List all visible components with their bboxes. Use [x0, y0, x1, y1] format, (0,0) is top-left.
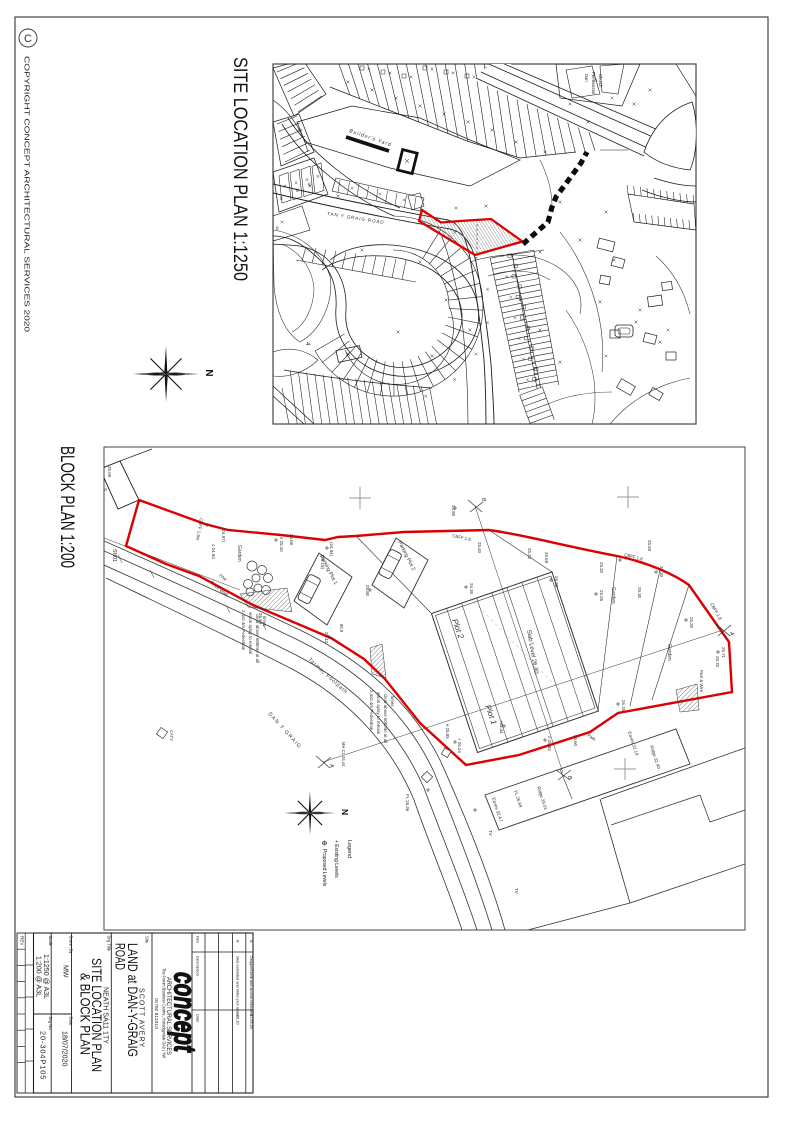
- svg-text:e 25.85: e 25.85: [445, 724, 450, 739]
- svg-text:20-304P105: 20-304P105: [39, 1031, 48, 1080]
- svg-text:B: B: [566, 776, 572, 780]
- svg-text:2.4x2.4m Pedestrian: 2.4x2.4m Pedestrian: [241, 610, 246, 651]
- svg-text:Drg Title: Drg Title: [107, 936, 112, 952]
- svg-text:CATV: CATV: [169, 730, 174, 741]
- svg-text:o 24.93: o 24.93: [211, 544, 216, 559]
- svg-text:12: 12: [279, 196, 283, 200]
- svg-text:26.15: 26.15: [621, 700, 626, 712]
- svg-text:& BLOCK PLAN: & BLOCK PLAN: [77, 973, 93, 1055]
- svg-text:B: B: [480, 498, 486, 502]
- svg-text:25.59: 25.59: [647, 540, 652, 552]
- svg-text:vision splay to remain: vision splay to remain: [248, 612, 253, 655]
- svg-text:25.43: 25.43: [324, 632, 329, 644]
- svg-text:42: 42: [275, 226, 279, 230]
- svg-text:Drawn By: Drawn By: [69, 936, 74, 955]
- svg-text:01.09.20: 01.09.20: [249, 1014, 253, 1029]
- svg-text:(24.87): (24.87): [221, 528, 226, 542]
- svg-text:(24.94): (24.94): [329, 542, 334, 556]
- svg-text:26.25: 26.25: [554, 576, 559, 588]
- svg-text:BLOCK PLAN 1:200: BLOCK PLAN 1:200: [56, 446, 77, 568]
- svg-text:Rev: Rev: [196, 936, 201, 943]
- svg-text:Proposed Levels: Proposed Levels: [321, 849, 327, 887]
- svg-text:REV: REV: [20, 936, 25, 946]
- svg-text:25.08: 25.08: [289, 534, 294, 546]
- svg-text:Post & Wire: Post & Wire: [699, 670, 704, 693]
- svg-text:B: B: [236, 940, 241, 943]
- svg-text:MH CL 26.44: MH CL 26.44: [341, 742, 346, 767]
- svg-text:+25.44: +25.44: [499, 720, 504, 734]
- svg-text:25.59: 25.59: [258, 613, 263, 625]
- svg-text:times: times: [390, 696, 395, 707]
- svg-text:25.30: 25.30: [637, 587, 642, 599]
- svg-text:Drg No: Drg No: [48, 1017, 53, 1031]
- svg-text:Pentecostal: Pentecostal: [591, 72, 596, 94]
- svg-text:Scale: Scale: [48, 936, 53, 947]
- svg-text:18/07/2020: 18/07/2020: [61, 1031, 69, 1067]
- svg-text:25.40: 25.40: [477, 542, 482, 554]
- svg-text:o 25.93: o 25.93: [547, 736, 552, 751]
- svg-text:TV: TV: [514, 888, 519, 894]
- svg-text:3.8.20: 3.8.20: [236, 1014, 240, 1025]
- svg-text:A: A: [328, 764, 334, 768]
- svg-text:A: A: [249, 940, 254, 943]
- svg-text:N: N: [203, 369, 214, 376]
- svg-text:COPYRIGHT CONCEPT ARCHITECTURA: COPYRIGHT CONCEPT ARCHITECTURAL SERVICES…: [23, 56, 32, 332]
- svg-text:Dan: Dan: [584, 74, 589, 82]
- svg-text:MW: MW: [62, 965, 70, 978]
- svg-text:86.9: 86.9: [339, 624, 344, 633]
- svg-text:25.60: 25.60: [573, 735, 578, 747]
- svg-text:A: A: [728, 632, 734, 636]
- svg-text:Dropped kerb and access reloca: Dropped kerb and access relocated: [249, 956, 253, 1016]
- svg-text:Garden: Garden: [236, 545, 242, 562]
- svg-text:25.09: 25.09: [107, 466, 112, 478]
- svg-text:+ Existing Levels: + Existing Levels: [333, 840, 339, 878]
- svg-text:1:200 @ A3L: 1:200 @ A3L: [35, 956, 43, 997]
- svg-text:25.20: 25.20: [527, 548, 532, 560]
- svg-text:Garden: Garden: [666, 644, 672, 661]
- svg-text:vision splay to remain: vision splay to remain: [376, 692, 381, 735]
- svg-text:N: N: [340, 809, 350, 815]
- svg-text:C: C: [24, 33, 32, 45]
- svg-text:SN01: SN01: [111, 549, 117, 562]
- svg-text:(25.19): (25.19): [320, 555, 325, 569]
- svg-text:01792 812010: 01792 812010: [153, 998, 159, 1029]
- svg-text:SITE LOCATION PLAN 1:1250: SITE LOCATION PLAN 1:1250: [229, 57, 250, 281]
- svg-text:Church: Church: [598, 74, 603, 88]
- svg-text:clear above 600mm at all: clear above 600mm at all: [383, 694, 388, 743]
- svg-text:25.71: 25.71: [721, 647, 726, 659]
- svg-text:ROAD: ROAD: [113, 943, 129, 970]
- svg-text:25.80: 25.80: [365, 585, 370, 597]
- svg-text:FL 26.36: FL 26.36: [405, 794, 410, 812]
- svg-text:TV: TV: [488, 830, 493, 836]
- svg-text:25.59: 25.59: [544, 552, 549, 564]
- svg-text:e 25.10: e 25.10: [279, 537, 284, 552]
- svg-text:Garden: Garden: [610, 587, 616, 604]
- svg-text:Description: Description: [196, 956, 201, 976]
- svg-text:Side extended and Video plot a: Side extended and Video plot added: [236, 956, 240, 1017]
- svg-text:25.70: 25.70: [715, 656, 720, 668]
- svg-text:2.4x2.4m Pedestrian: 2.4x2.4m Pedestrian: [369, 690, 374, 731]
- svg-text:26.35: 26.35: [469, 583, 474, 595]
- svg-text:26.25: 26.25: [599, 590, 604, 602]
- svg-text:+ 26.24: + 26.24: [457, 738, 462, 753]
- svg-text:Legend: Legend: [346, 840, 352, 858]
- svg-text:25.20: 25.20: [599, 562, 604, 574]
- svg-text:The Forum Business Centre, Yst: The Forum Business Centre, Ystradgynlais…: [162, 968, 167, 1059]
- svg-text:Site: Site: [145, 936, 150, 944]
- svg-text:25.20: 25.20: [659, 566, 664, 578]
- svg-text:Date: Date: [69, 1017, 74, 1027]
- svg-text:Date: Date: [196, 1014, 201, 1023]
- svg-text:25.20: 25.20: [689, 617, 694, 629]
